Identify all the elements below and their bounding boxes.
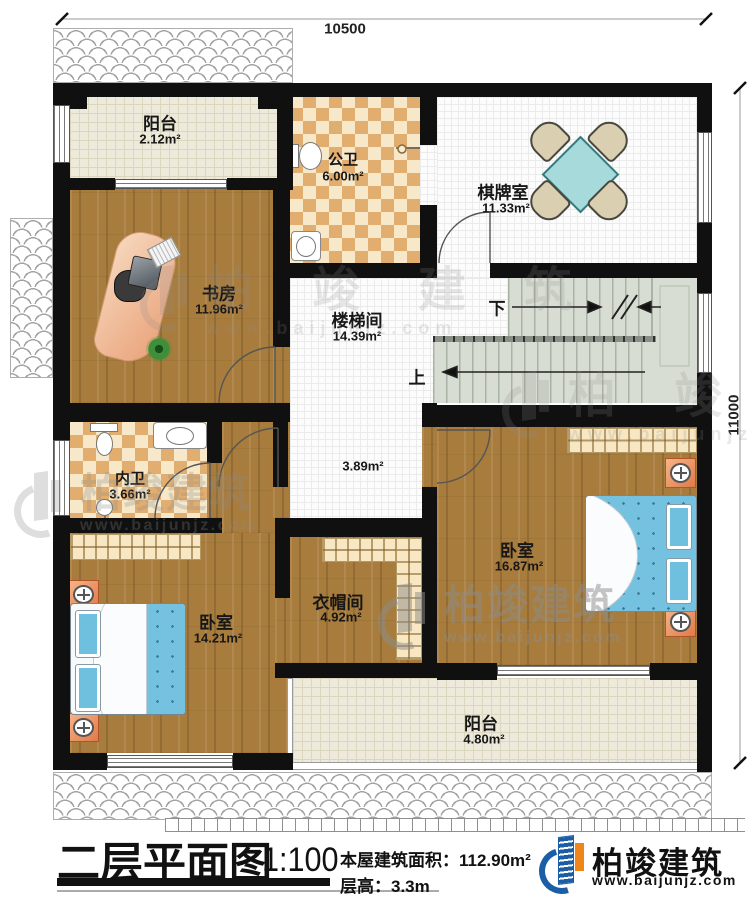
- sink-basin-icon: [296, 236, 316, 257]
- cloakroom-doorway: [275, 598, 290, 663]
- closet-rack: [322, 538, 399, 562]
- floor-plan-page: 阳台 2.12m² 公卫 6.00m² 棋牌室 11.33m² 书房 11.96…: [0, 0, 750, 904]
- bedroom-right-doorway: [422, 427, 437, 487]
- wall-segment: [420, 83, 437, 145]
- stair-railing: [433, 336, 656, 342]
- room-label-private-bath: 内卫: [115, 468, 145, 489]
- brand-logo-icon: [541, 836, 589, 888]
- window: [697, 132, 712, 223]
- wall-segment: [277, 263, 437, 278]
- wall-segment: [697, 373, 712, 772]
- window: [497, 665, 650, 676]
- wall-segment: [53, 403, 290, 422]
- wall-segment: [650, 663, 712, 680]
- shower-icon: [96, 499, 113, 516]
- plan-scale: 1:100: [262, 841, 339, 880]
- wall-segment: [288, 518, 422, 537]
- title-underline: [57, 878, 330, 886]
- room-area-bedroom-left: 14.21m²: [194, 631, 242, 646]
- wall-segment: [422, 403, 437, 427]
- window: [697, 293, 712, 373]
- hall-area-label: 3.89m²: [342, 459, 383, 474]
- wall-segment: [437, 663, 497, 680]
- roof-tiles-top: [53, 28, 293, 83]
- room-area-private-bath: 3.66m²: [109, 487, 150, 502]
- room-area-balcony-bottom: 4.80m²: [463, 732, 504, 747]
- toilet-bowl-icon: [96, 432, 113, 456]
- wall-segment: [277, 83, 293, 188]
- sink-basin-icon: [166, 427, 194, 445]
- room-area-bedroom-right: 16.87m²: [495, 559, 543, 574]
- toilet-bowl-icon: [299, 142, 322, 170]
- stair-lower-flight: [433, 341, 654, 403]
- wall-segment: [697, 223, 712, 293]
- plant-icon: [146, 336, 172, 362]
- stair-landing: [652, 278, 697, 403]
- toilet-icon: [90, 423, 118, 432]
- floor-height-label: 层高：3.3m: [340, 872, 430, 897]
- private-bath-doorway: [207, 463, 222, 518]
- dimension-right: 11000: [726, 395, 743, 436]
- study-floor: [70, 188, 277, 403]
- wall-segment: [422, 487, 437, 678]
- bed: [585, 495, 697, 612]
- wall-segment: [207, 422, 222, 463]
- closet-rack: [70, 534, 201, 560]
- roof-tiles-left: [10, 218, 53, 378]
- bedroom-left-doorway: [273, 487, 288, 518]
- wall-segment: [53, 753, 107, 770]
- wall-segment: [53, 518, 222, 533]
- bed: [70, 603, 186, 715]
- window: [53, 440, 70, 516]
- wall-segment: [275, 518, 290, 598]
- wall-segment: [53, 163, 70, 440]
- window: [115, 179, 227, 189]
- nightstand: [68, 713, 99, 742]
- room-area-cloakroom: 4.92m²: [320, 610, 361, 625]
- wall-segment: [420, 205, 437, 263]
- wall-segment: [275, 663, 437, 678]
- chess-doorway: [437, 263, 490, 278]
- wall-segment: [53, 178, 115, 190]
- window: [53, 105, 70, 163]
- closet-rack: [567, 428, 697, 453]
- roof-tiles-bottom: [53, 772, 712, 820]
- wall-segment: [53, 516, 70, 770]
- room-area-chess-room: 11.33m²: [482, 201, 530, 216]
- brand-url: www.baijunjz.com: [592, 872, 737, 888]
- room-area-public-bath: 6.00m²: [322, 169, 363, 184]
- balcony-rail-bottom: [290, 762, 698, 770]
- wall-segment: [697, 83, 712, 132]
- room-label-public-bath: 公卫: [328, 149, 358, 170]
- building-area-label: 本屋建筑面积：112.90m²: [340, 846, 531, 871]
- room-area-study: 11.96m²: [195, 302, 243, 317]
- window: [107, 755, 233, 768]
- closet-rack: [396, 538, 422, 660]
- nightstand: [665, 458, 696, 488]
- stair-up-label: 上: [409, 364, 426, 389]
- wall-segment: [273, 422, 288, 487]
- room-area-stairwell: 14.39m²: [333, 329, 381, 344]
- room-area-balcony-top: 2.12m²: [139, 132, 180, 147]
- public-bath-doorway: [420, 145, 437, 205]
- wall-segment: [233, 753, 293, 770]
- stair-upper-flight: [508, 278, 656, 341]
- stair-down-label: 下: [489, 295, 506, 320]
- wall-segment: [437, 405, 712, 427]
- wall-segment: [490, 263, 712, 278]
- wall-segment: [53, 83, 712, 97]
- study-doorway: [273, 347, 290, 403]
- dimension-top: 10500: [324, 21, 366, 38]
